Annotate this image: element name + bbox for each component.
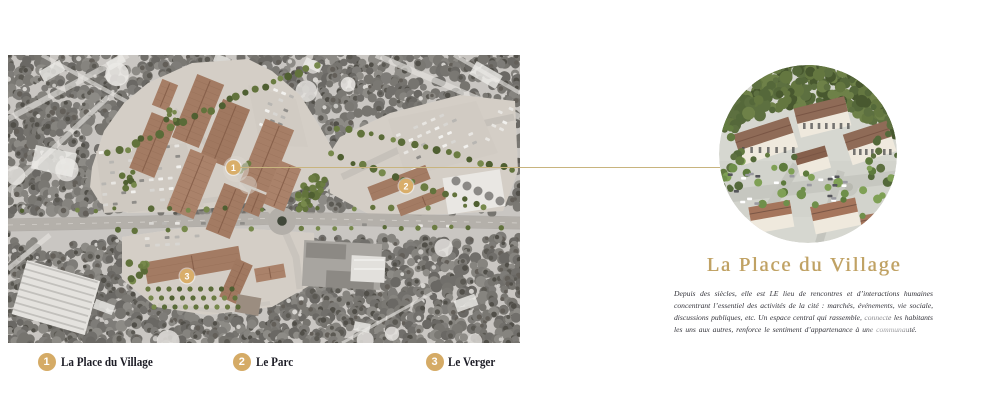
- svg-text:2: 2: [403, 182, 408, 192]
- svg-text:3: 3: [184, 272, 189, 282]
- svg-text:1: 1: [231, 163, 236, 173]
